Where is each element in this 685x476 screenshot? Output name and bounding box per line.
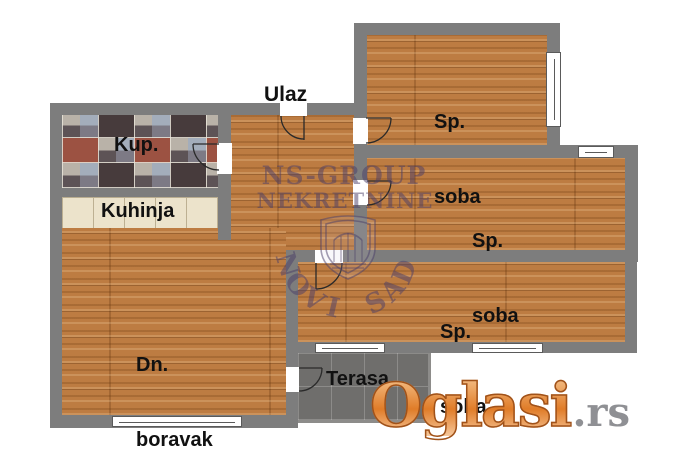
label-living-room-line1: Dn.: [136, 353, 213, 378]
label-bedroom-1-line1: Sp.: [434, 110, 481, 135]
label-bedroom-3-line1: Sp.: [440, 320, 487, 345]
door-arc-entrance: [281, 116, 304, 140]
watermark-line-1: NS-GROUP: [262, 161, 427, 190]
door-arc-terrace: [299, 368, 322, 391]
label-bathroom: Kup.: [114, 133, 158, 158]
label-living-room-line2: boravak: [136, 428, 213, 453]
oglasi-logo: Oglasi .rs: [370, 376, 630, 436]
floorplan-canvas: NS-GROUP NEKRETNINE NOVI SAD Ulaz Kup. K…: [0, 0, 685, 476]
watermark-line-2: NEKRETNINE: [257, 188, 434, 213]
label-living-room: Dn. boravak: [136, 303, 213, 476]
door-arc-bathroom: [193, 144, 219, 170]
oglasi-logo-tld: .rs: [572, 393, 630, 433]
watermark-shield-icon: [321, 216, 375, 279]
label-bedroom-2-line1: Sp.: [472, 229, 519, 254]
label-kitchen: Kuhinja: [101, 199, 174, 224]
door-arc-bedroom-1: [366, 118, 391, 143]
oglasi-logo-brand: Oglasi: [370, 376, 570, 436]
label-entrance: Ulaz: [264, 82, 307, 107]
